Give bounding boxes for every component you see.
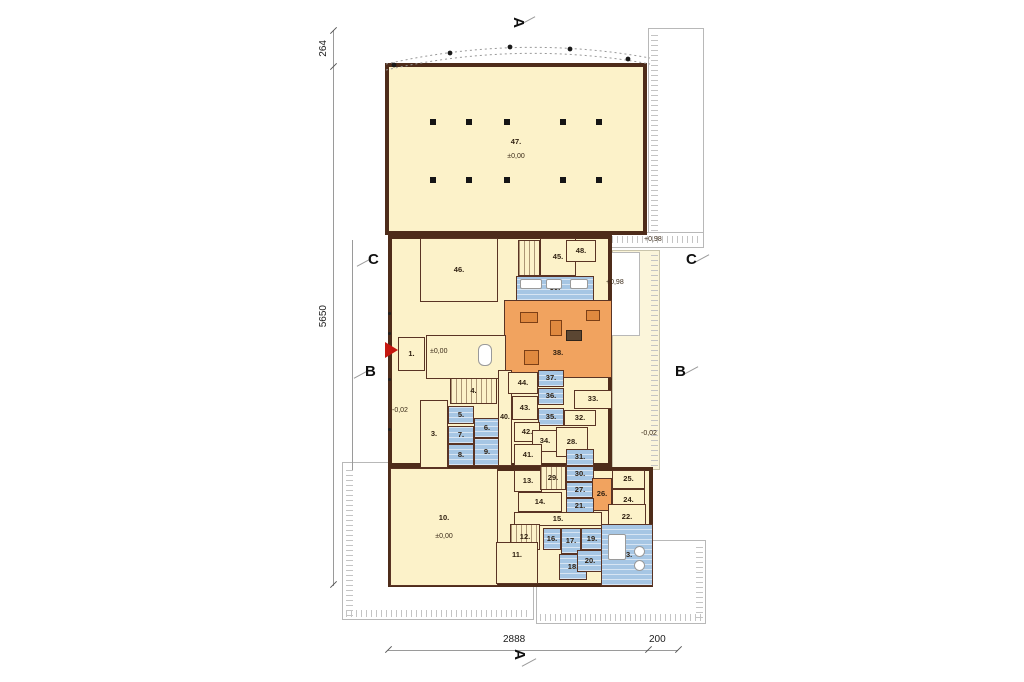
column xyxy=(596,119,602,125)
counter xyxy=(520,279,542,289)
room-8: 8. xyxy=(448,444,474,466)
room-31: 31. xyxy=(566,449,594,466)
room-11: 11. xyxy=(496,542,538,584)
dim-tick xyxy=(675,646,682,653)
room-25: 25. xyxy=(612,470,645,489)
room-10: 10. ±0,00 xyxy=(390,468,498,586)
room-19: 19. xyxy=(581,528,603,550)
elevation-lobby: ±0,00 xyxy=(430,348,447,355)
section-marker-c-right: C xyxy=(686,251,697,268)
dimension-2888: 2888 xyxy=(503,634,525,645)
bathtub xyxy=(608,534,626,560)
column xyxy=(504,119,510,125)
room-27: 27. xyxy=(566,482,594,498)
elevation-west: -0,02 xyxy=(392,407,408,414)
floor-plan-canvas: 47. ±0,00 46. 45. 48. 39. 38. 1. 2. 4. 3… xyxy=(0,0,1024,682)
room-1: 1. xyxy=(398,337,425,371)
table xyxy=(520,312,538,323)
stairs-45 xyxy=(518,240,540,276)
column xyxy=(430,119,436,125)
room-13: 13. xyxy=(514,470,542,492)
terrace-southeast-hatch-h xyxy=(540,614,702,621)
elevation-garage: ±0,00 xyxy=(435,533,452,540)
counter xyxy=(546,279,562,289)
room-2: 2. xyxy=(426,335,506,379)
section-marker-b-left: B xyxy=(365,363,376,380)
dimension-5650: 5650 xyxy=(318,305,329,327)
column xyxy=(430,177,436,183)
basin xyxy=(634,546,645,557)
section-marker-a-bottom: A xyxy=(511,649,528,660)
room-35: 35. xyxy=(538,408,564,426)
dim-tick xyxy=(330,581,337,588)
column xyxy=(560,119,566,125)
dimension-line-left xyxy=(333,30,334,586)
counter xyxy=(570,279,588,289)
room-9: 9. xyxy=(474,438,500,466)
room-43: 43. xyxy=(512,396,538,420)
dimension-200: 200 xyxy=(649,634,666,645)
stove xyxy=(566,330,582,341)
room-16: 16. xyxy=(543,528,561,550)
room-41: 41. xyxy=(514,444,542,466)
elevation-terrace-ne: +0,98 xyxy=(644,236,662,243)
terrace-southwest-hatch-v xyxy=(346,466,353,616)
room-14: 14. xyxy=(518,492,562,512)
room-30: 30. xyxy=(566,466,594,482)
room-33: 33. xyxy=(574,390,612,409)
reception-desk xyxy=(478,344,492,366)
elevation-hall: ±0,00 xyxy=(507,153,524,160)
room-20: 20. xyxy=(577,550,603,572)
elevation-east: -0,02 xyxy=(641,430,657,437)
column xyxy=(560,177,566,183)
column xyxy=(596,177,602,183)
column xyxy=(466,119,472,125)
column xyxy=(466,177,472,183)
room-37: 37. xyxy=(538,370,564,387)
dimension-264: 264 xyxy=(318,40,329,57)
section-marker-b-right: B xyxy=(675,363,686,380)
terrace-southwest-hatch-h xyxy=(346,610,530,617)
room-46: 46. xyxy=(420,238,498,302)
room-47-label: 47. xyxy=(511,138,521,146)
table xyxy=(586,310,600,321)
facade-dot xyxy=(388,378,391,381)
room-7: 7. xyxy=(448,426,474,444)
room-4: 4. xyxy=(450,378,497,404)
facade-dot xyxy=(388,332,391,335)
facade-dot xyxy=(388,428,391,431)
column xyxy=(504,177,510,183)
room-36: 36. xyxy=(538,388,564,405)
section-marker-c-left: C xyxy=(368,251,379,268)
entrance-arrow xyxy=(385,342,398,358)
basin xyxy=(634,560,645,571)
room-6: 6. xyxy=(474,418,500,438)
canopy-arc xyxy=(378,28,658,74)
room-48: 48. xyxy=(566,240,596,262)
terrace-southeast-hatch-v xyxy=(696,544,703,618)
table xyxy=(524,350,539,365)
room-44: 44. xyxy=(508,372,538,394)
room-47-hall: 47. ±0,00 xyxy=(385,63,647,235)
elevation-ramp-e: +0,98 xyxy=(606,279,624,286)
section-marker-a-top: A xyxy=(510,17,527,28)
dimension-line-bottom xyxy=(388,650,678,651)
table xyxy=(550,320,562,336)
room-3: 3. xyxy=(420,400,448,468)
room-32: 32. xyxy=(564,410,596,426)
room-5: 5. xyxy=(448,406,474,424)
room-29: 29. xyxy=(540,466,566,490)
deck-west-edge xyxy=(352,240,353,470)
facade-dot xyxy=(388,312,391,315)
